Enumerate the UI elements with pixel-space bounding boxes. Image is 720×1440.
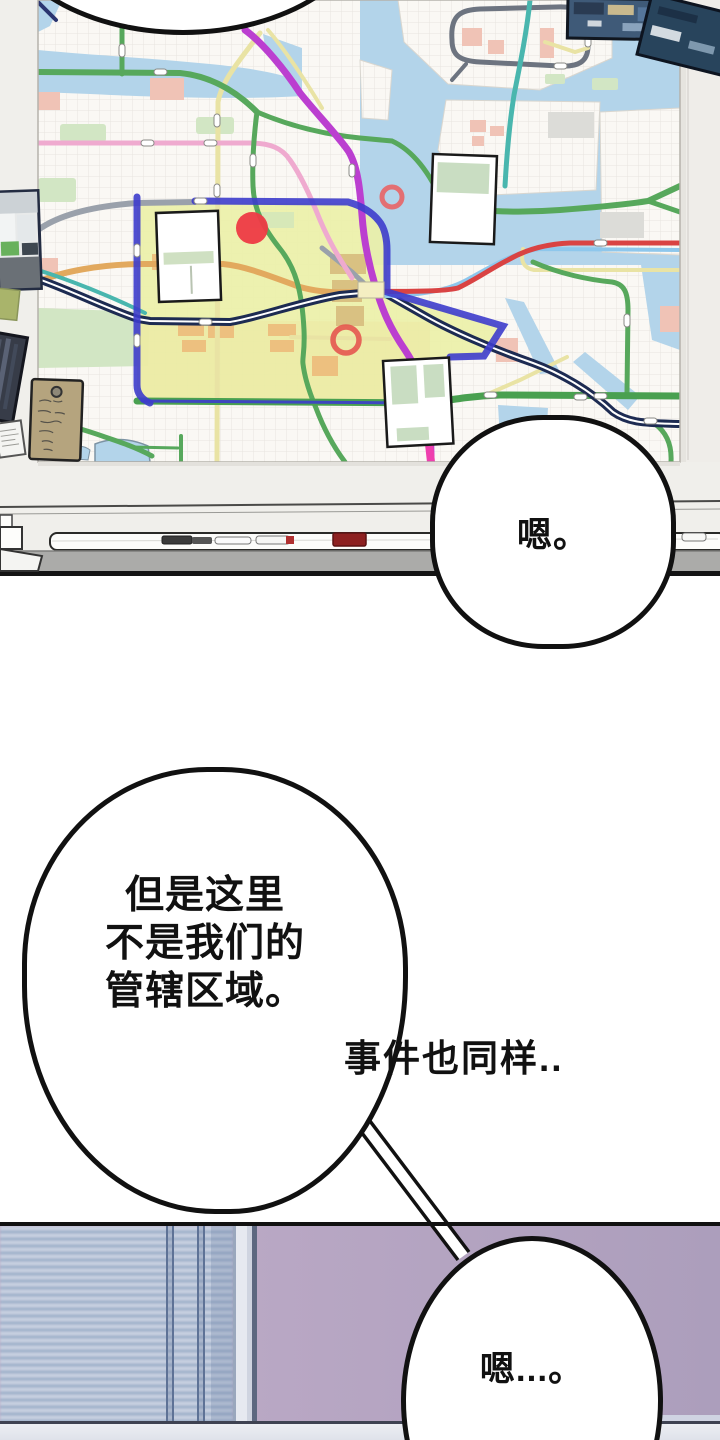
window-frame-edge	[252, 1226, 257, 1440]
comic-page: 嗯。 但是这里 不是我们的 管辖区域。 事件也同样.. 嗯...。	[0, 0, 720, 1440]
marker-pen	[215, 537, 251, 544]
speech-bubble-2: 但是这里 不是我们的 管辖区域。	[22, 767, 408, 1214]
window-frame	[233, 1226, 252, 1440]
marker-pen	[682, 533, 706, 541]
pinned-photo-street	[0, 191, 41, 290]
speech-text-1: 嗯。	[517, 507, 589, 558]
blind-tape	[166, 1226, 174, 1440]
board-eraser	[333, 533, 366, 546]
city-map	[38, 0, 680, 462]
caption-text: 事件也同样..	[344, 1028, 564, 1082]
red-dot-marker	[236, 212, 268, 244]
blind-shade	[211, 1226, 233, 1440]
pinned-note	[430, 154, 497, 244]
pinned-card	[0, 420, 25, 457]
marker-pen	[162, 536, 192, 544]
panel-border-line	[0, 1222, 720, 1226]
marker-pen	[256, 536, 290, 544]
speech-text-3: 嗯...。	[406, 1341, 658, 1392]
pinned-note	[383, 358, 453, 447]
speech-bubble-1: 嗯。	[430, 415, 676, 649]
marker-pen	[192, 537, 212, 544]
sticky-note-green	[0, 288, 20, 320]
blind-tape	[197, 1226, 205, 1440]
pinned-note	[156, 211, 221, 302]
hang-tag-note	[29, 379, 83, 461]
speech-text-2: 但是这里 不是我们的 管辖区域。	[17, 872, 393, 1016]
